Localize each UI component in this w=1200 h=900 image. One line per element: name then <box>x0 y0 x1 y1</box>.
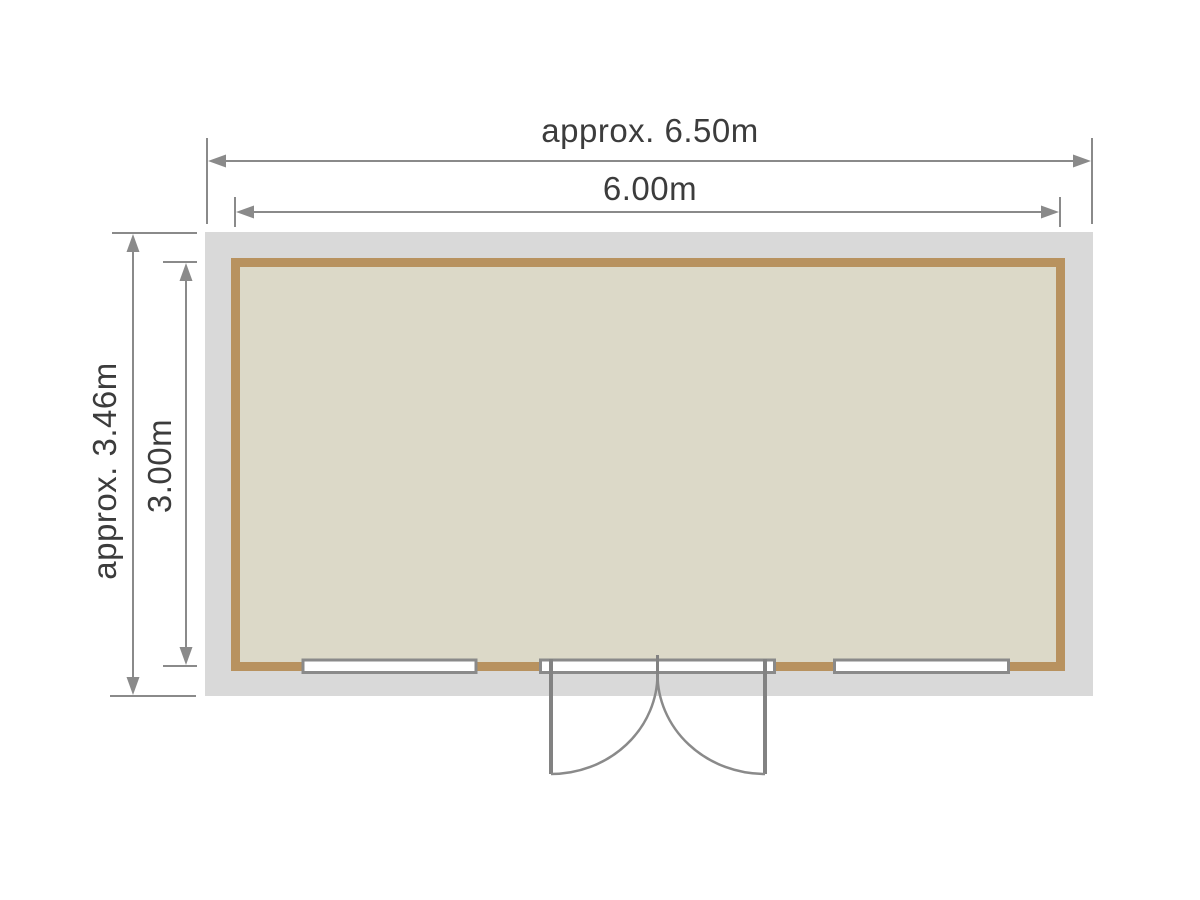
window-right <box>835 660 1009 673</box>
arrow-right-icon <box>1073 155 1091 168</box>
arrow-right-icon <box>1041 206 1059 219</box>
arrow-left-icon <box>236 206 254 219</box>
interior-floor <box>240 267 1056 662</box>
outer-width-label: approx. 6.50m <box>541 112 758 150</box>
arrow-up-icon <box>127 234 140 252</box>
floor-plan-stage: approx. 6.50m 6.00m approx. 3.46m 3.00m <box>0 0 1200 900</box>
arrow-down-icon <box>127 677 140 695</box>
arrow-left-icon <box>208 155 226 168</box>
inner-width-label: 6.00m <box>603 170 697 208</box>
arrow-down-icon <box>180 647 193 665</box>
outer-depth-label: approx. 3.46m <box>86 362 124 579</box>
arrow-up-icon <box>180 263 193 281</box>
window-left <box>303 660 476 673</box>
inner-depth-label: 3.00m <box>141 419 179 513</box>
